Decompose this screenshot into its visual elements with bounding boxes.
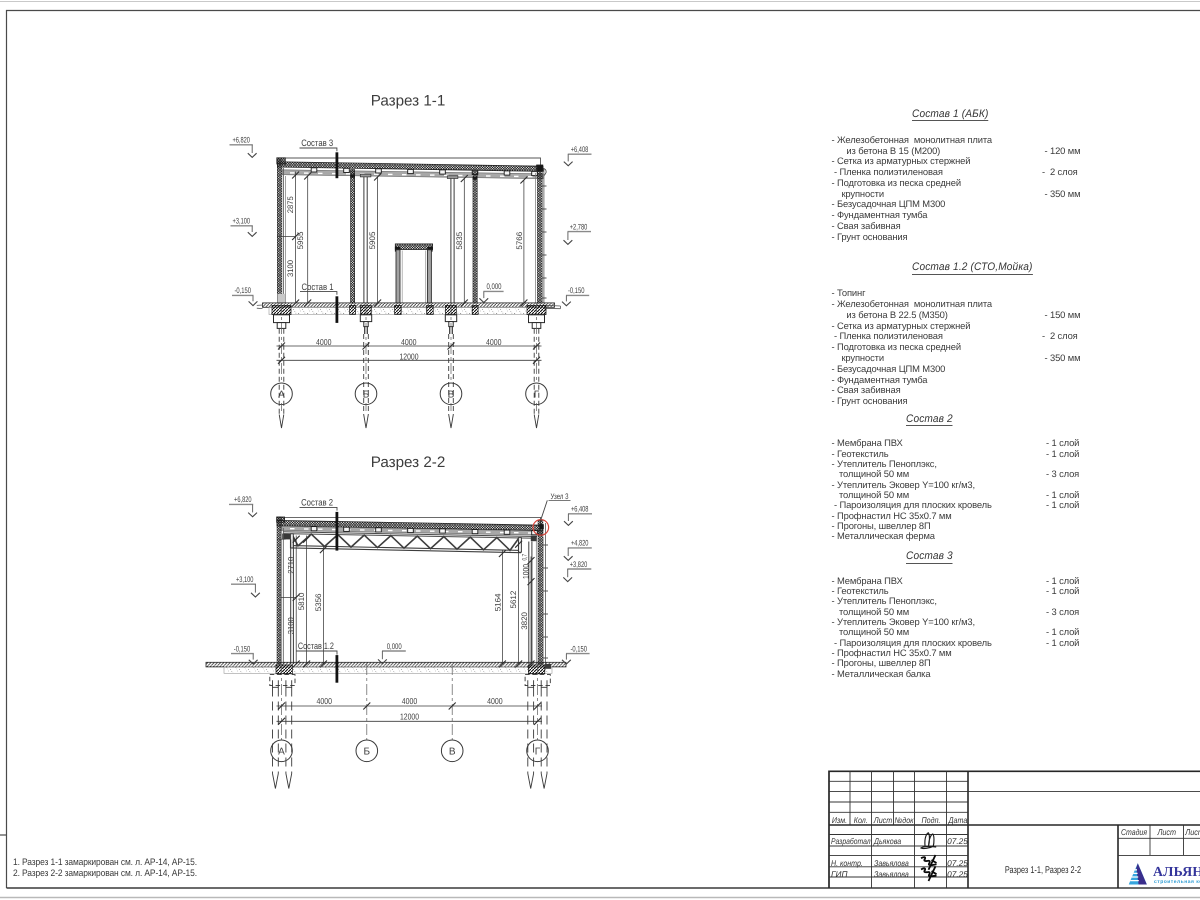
svg-text:+2,780: +2,780: [570, 222, 588, 231]
svg-text:+3,100: +3,100: [233, 217, 251, 226]
svg-text:+3,100: +3,100: [236, 575, 254, 584]
svg-text:В: В: [448, 389, 455, 400]
svg-text:5164: 5164: [493, 593, 502, 611]
svg-text:+4,820: +4,820: [571, 539, 589, 548]
svg-text:-0,150: -0,150: [234, 644, 251, 653]
svg-text:Состав 3: Состав 3: [301, 138, 333, 148]
svg-text:12000: 12000: [400, 711, 419, 721]
svg-text:2710: 2710: [286, 556, 295, 574]
svg-text:Б: Б: [364, 746, 371, 757]
svg-text:4000: 4000: [316, 337, 332, 347]
svg-text:5905: 5905: [368, 231, 377, 249]
svg-text:Разрез 1-1: Разрез 1-1: [371, 93, 446, 110]
svg-text:5356: 5356: [314, 593, 323, 611]
svg-text:1000: 1000: [521, 564, 530, 579]
svg-text:А: А: [278, 389, 285, 400]
svg-text:-0,150: -0,150: [234, 286, 251, 295]
svg-text:+3,820: +3,820: [570, 560, 588, 569]
svg-text:2875: 2875: [286, 196, 295, 214]
svg-text:0,7: 0,7: [521, 554, 528, 561]
svg-text:В: В: [449, 746, 456, 757]
svg-text:Состав 2: Состав 2: [301, 497, 333, 507]
svg-text:Г: Г: [534, 389, 540, 400]
svg-text:+6,820: +6,820: [234, 495, 252, 504]
svg-text:4000: 4000: [402, 696, 418, 706]
svg-text:5810: 5810: [297, 592, 306, 610]
svg-text:Узел 3: Узел 3: [550, 492, 568, 501]
svg-text:Б: Б: [363, 389, 370, 400]
svg-text:5612: 5612: [509, 590, 518, 608]
svg-text:3100: 3100: [286, 259, 295, 277]
svg-text:4000: 4000: [486, 337, 502, 347]
svg-text:4000: 4000: [487, 696, 503, 706]
svg-text:Г: Г: [535, 746, 541, 757]
svg-text:Разрез 2-2: Разрез 2-2: [371, 454, 446, 471]
svg-text:+6,408: +6,408: [571, 145, 589, 154]
svg-text:0,000: 0,000: [387, 642, 402, 651]
svg-text:А: А: [278, 746, 285, 757]
svg-text:4000: 4000: [316, 696, 332, 706]
svg-text:0,000: 0,000: [486, 282, 501, 291]
svg-text:3820: 3820: [520, 611, 529, 629]
svg-text:Состав 1: Состав 1: [301, 282, 333, 292]
svg-text:3100: 3100: [286, 617, 295, 635]
svg-text:5955: 5955: [296, 231, 305, 249]
svg-text:-0,150: -0,150: [568, 286, 585, 295]
svg-text:5835: 5835: [455, 231, 464, 249]
svg-text:+6,820: +6,820: [232, 136, 250, 145]
svg-text:4000: 4000: [401, 337, 417, 347]
svg-text:5766: 5766: [515, 231, 524, 249]
svg-text:-0,150: -0,150: [570, 644, 587, 653]
svg-text:12000: 12000: [399, 351, 418, 361]
svg-text:Состав 1.2: Состав 1.2: [298, 641, 334, 651]
svg-text:+6,408: +6,408: [571, 504, 589, 513]
